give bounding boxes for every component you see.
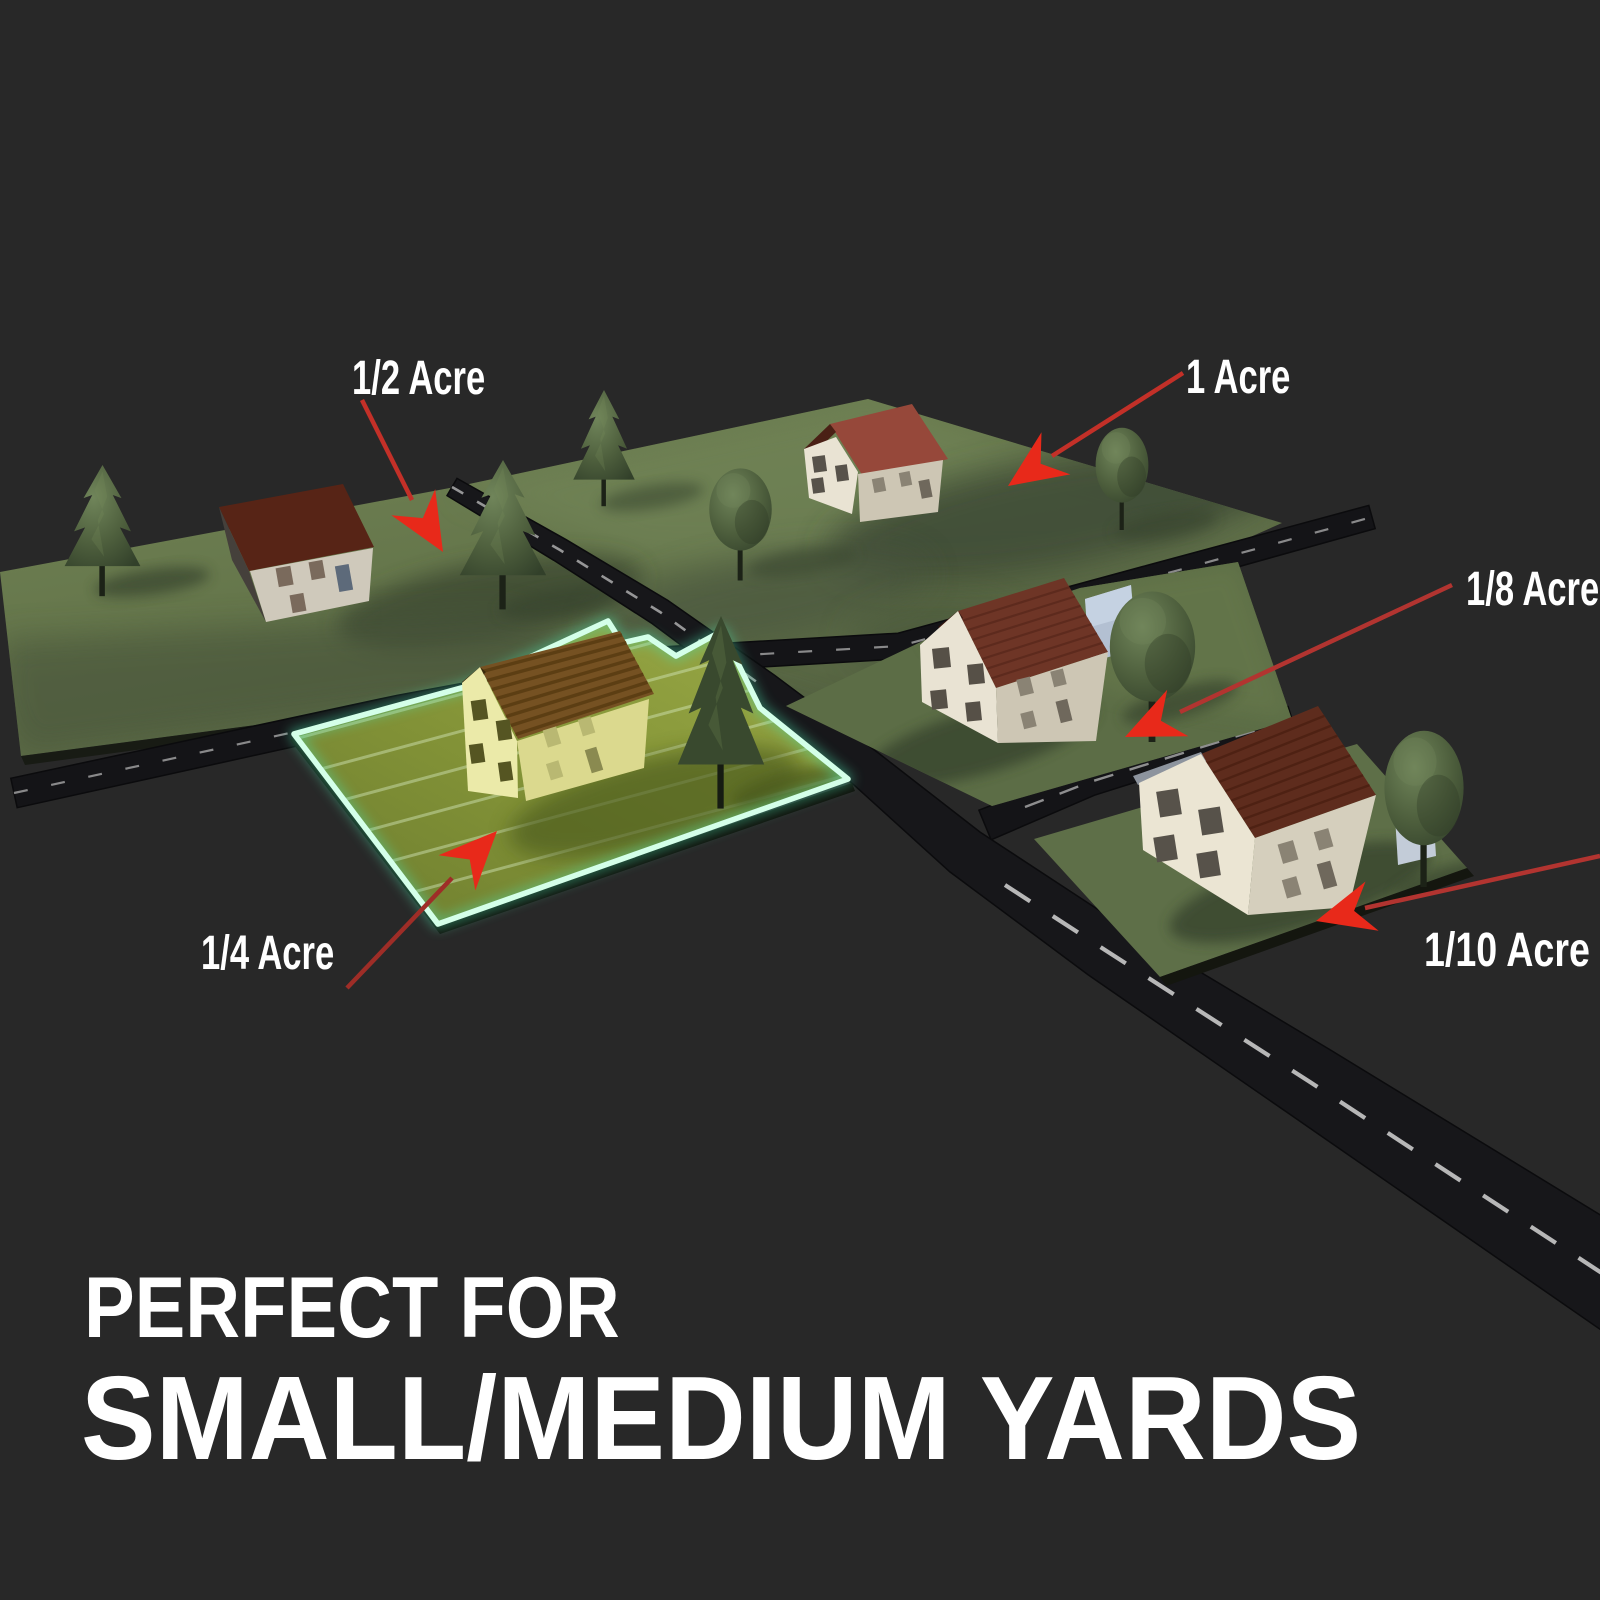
svg-text:1/10 Acre: 1/10 Acre — [1424, 924, 1590, 977]
svg-text:1/2 Acre: 1/2 Acre — [352, 350, 485, 404]
svg-text:SMALL/MEDIUM YARDS: SMALL/MEDIUM YARDS — [81, 1352, 1361, 1485]
svg-text:1 Acre: 1 Acre — [1186, 349, 1290, 403]
svg-text:1/8 Acre: 1/8 Acre — [1466, 561, 1599, 615]
svg-text:1/4 Acre: 1/4 Acre — [201, 925, 334, 979]
svg-text:PERFECT FOR: PERFECT FOR — [84, 1261, 620, 1356]
